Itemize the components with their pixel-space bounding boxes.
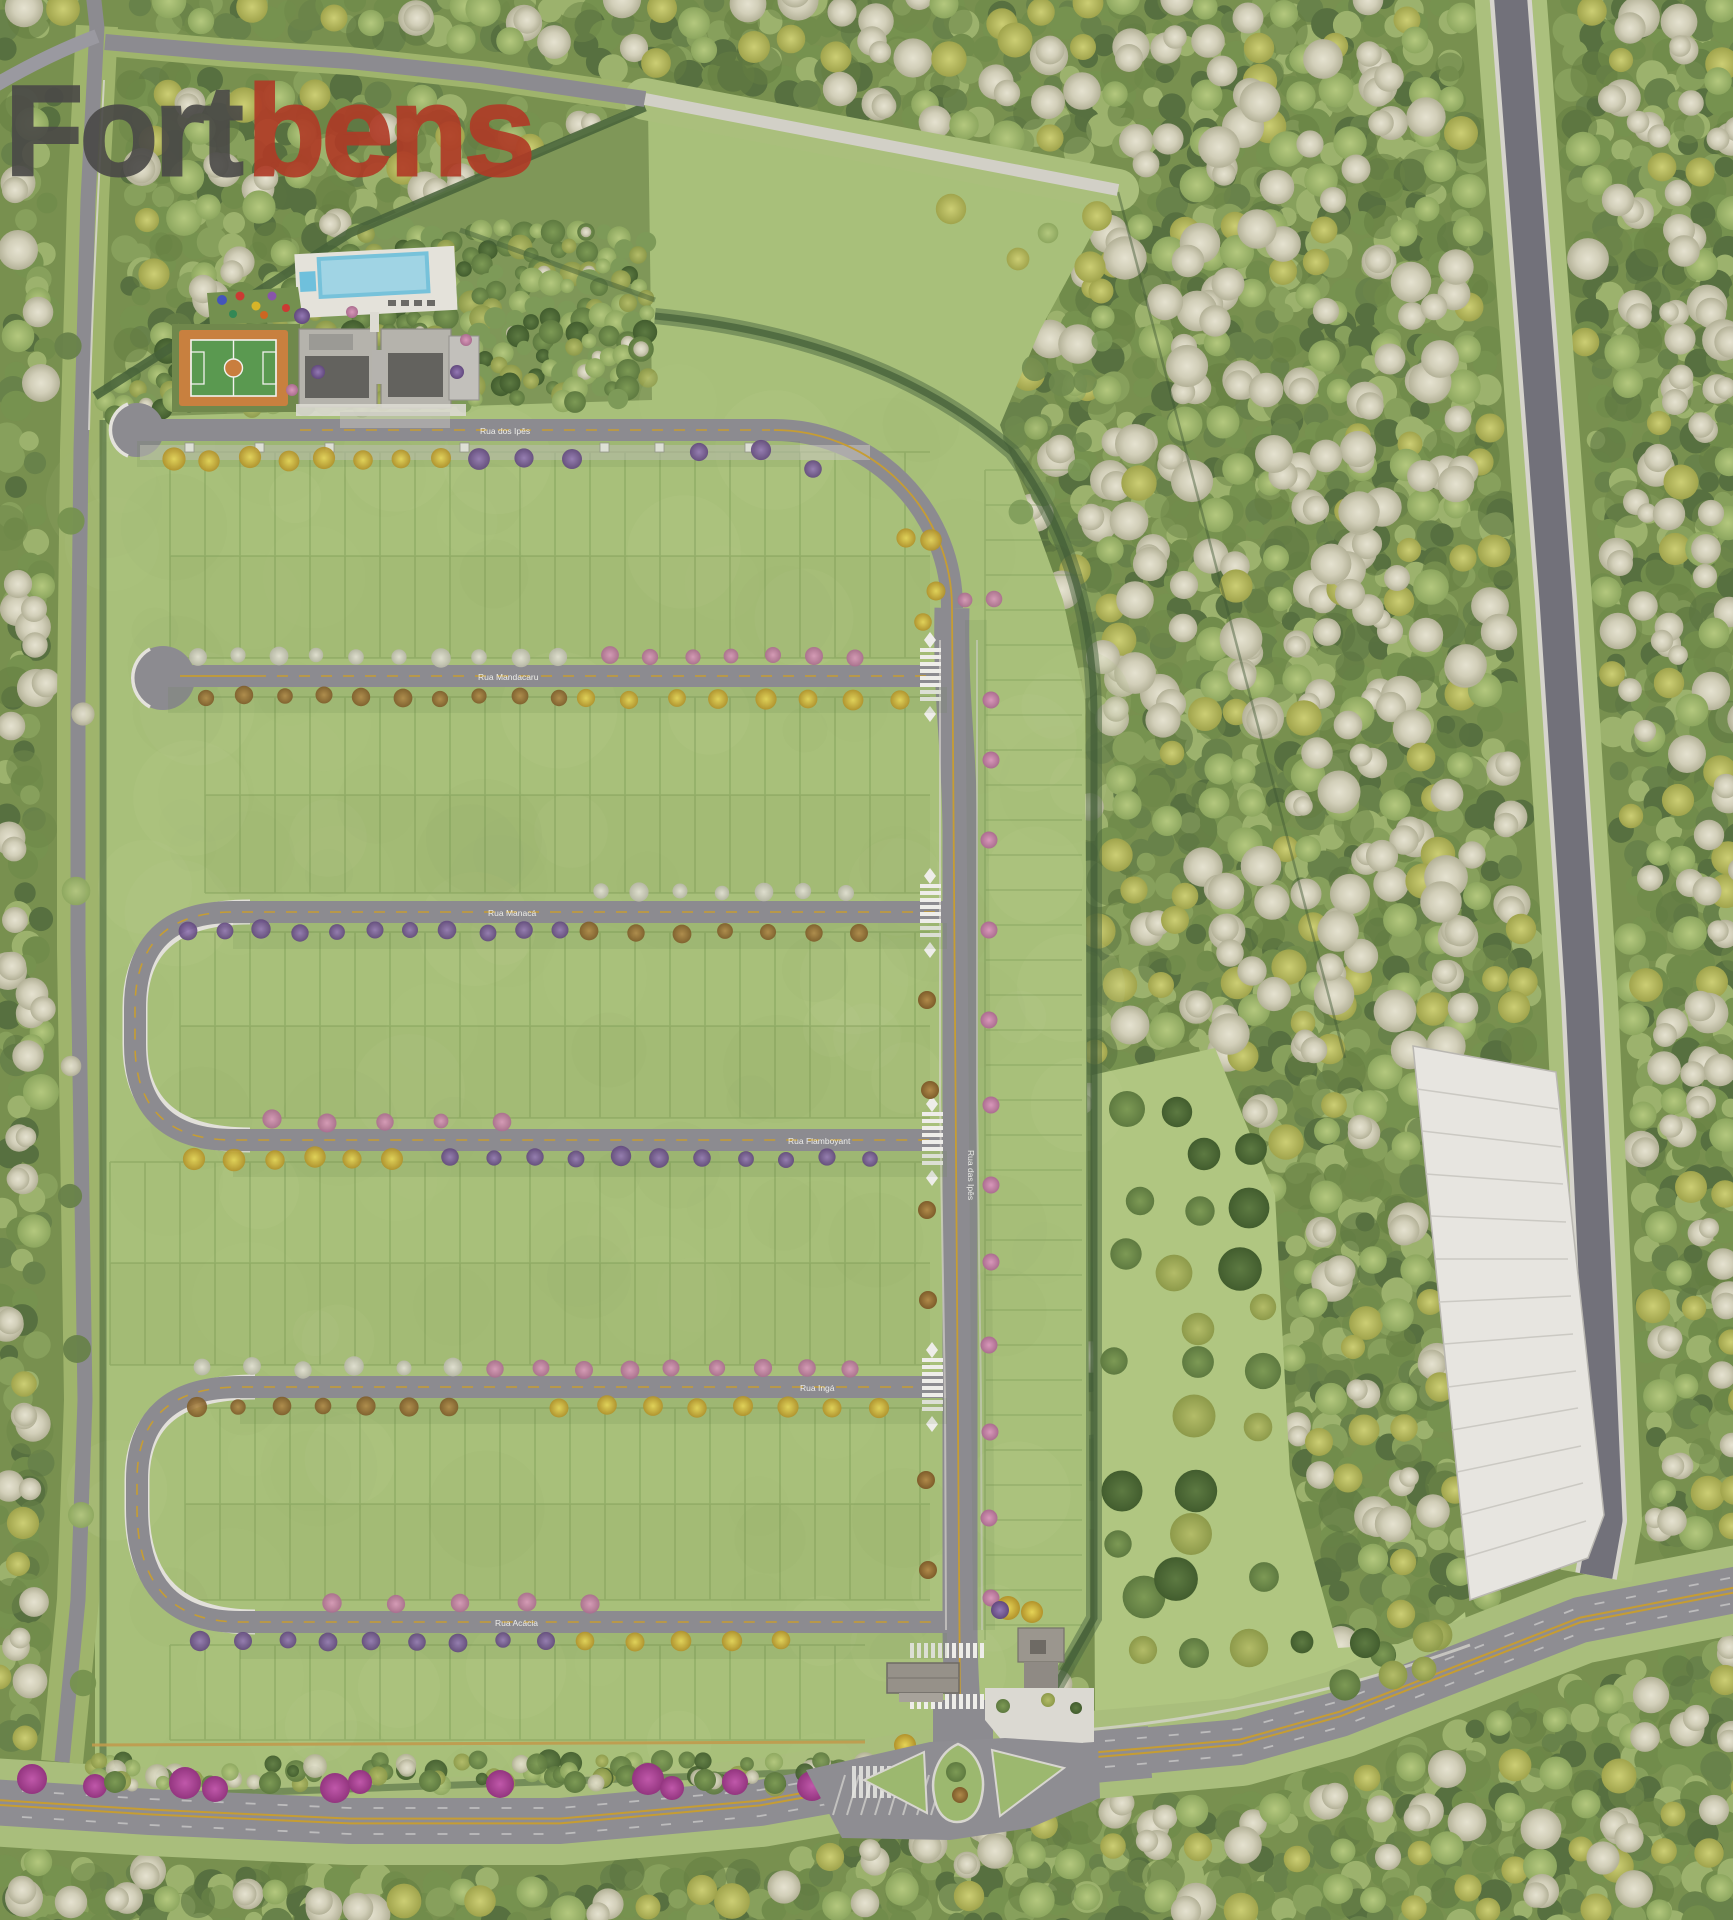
svg-text:Fort: Fort: [5, 60, 243, 203]
svg-text:Rua Acácia: Rua Acácia: [495, 1618, 538, 1628]
svg-text:Rua Ingá: Rua Ingá: [800, 1383, 835, 1393]
svg-text:Rua Mandacaru: Rua Mandacaru: [478, 672, 539, 682]
svg-text:Rua Flamboyant: Rua Flamboyant: [788, 1136, 851, 1146]
svg-text:bens: bens: [247, 60, 532, 203]
svg-text:Rua dos Ipês: Rua dos Ipês: [480, 426, 530, 436]
svg-text:Rua das Ipês: Rua das Ipês: [966, 1150, 976, 1200]
svg-text:Rua Manacá: Rua Manacá: [488, 908, 536, 918]
